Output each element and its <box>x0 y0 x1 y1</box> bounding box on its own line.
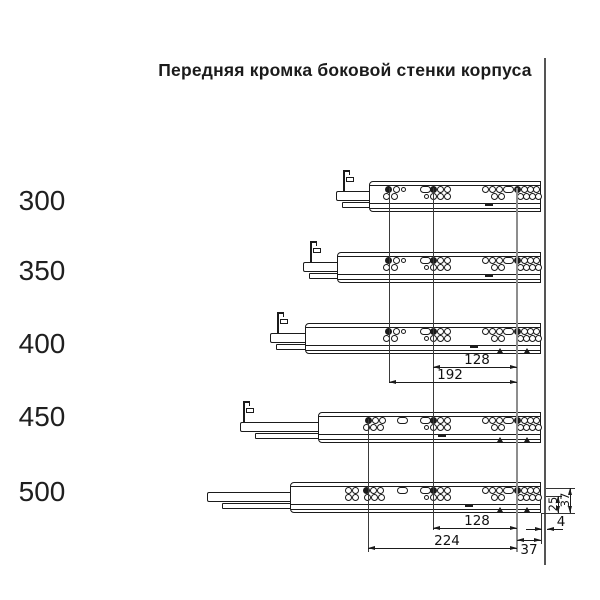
mounting-hole <box>533 186 540 193</box>
mounting-hole <box>437 494 444 501</box>
mounting-hole <box>391 335 398 342</box>
mounting-slot <box>503 487 514 494</box>
length-label-350: 350 <box>10 255 74 287</box>
mounting-hole <box>391 264 398 271</box>
diagram-canvas: Передняя кромка боковой стенки корпуса 3… <box>0 0 600 600</box>
mounting-hole <box>498 335 505 342</box>
mounting-hole <box>370 424 377 431</box>
mounting-slot <box>503 257 514 264</box>
mounting-slot <box>503 186 514 193</box>
mounting-hole <box>424 265 429 270</box>
mounting-slot <box>420 417 431 424</box>
drawer-hook-pin <box>310 241 312 262</box>
mounting-hole <box>482 257 489 264</box>
mounting-hole <box>533 417 540 424</box>
dim-arrowhead <box>510 365 517 369</box>
alignment-notch <box>524 507 530 512</box>
mounting-hole <box>345 494 352 501</box>
mounting-hole <box>444 487 451 494</box>
body-lower-line <box>319 439 540 440</box>
mounting-hole <box>535 335 542 342</box>
mounting-hole <box>496 417 503 424</box>
mounting-slot <box>420 186 431 193</box>
mounting-slot <box>503 417 514 424</box>
mounting-hole <box>491 264 498 271</box>
mounting-slot <box>420 328 431 335</box>
mounting-hole <box>489 186 496 193</box>
mounting-hole <box>393 257 400 264</box>
reference-line-x433 <box>433 188 434 530</box>
mounting-hole <box>424 336 429 341</box>
alignment-notch <box>524 348 530 353</box>
hook-pin-top-stub <box>283 312 285 317</box>
body-lower-line <box>370 208 540 209</box>
mounting-hole <box>496 186 503 193</box>
rail-350-drawer-bar <box>303 262 341 272</box>
mounting-hole <box>535 494 542 501</box>
mounting-hole <box>444 335 451 342</box>
mounting-hole <box>377 424 384 431</box>
mounting-hole <box>482 186 489 193</box>
mounting-hole <box>424 194 429 199</box>
dim-arrowhead <box>510 546 517 550</box>
reference-line-x517 <box>516 188 518 552</box>
rail-400-drawer-bar <box>270 333 309 343</box>
mounting-hole <box>437 335 444 342</box>
length-label-300: 300 <box>10 185 74 217</box>
mounting-hole <box>491 335 498 342</box>
mounting-hole <box>444 193 451 200</box>
mounting-hole <box>401 258 406 263</box>
mounting-hole <box>424 495 429 500</box>
mounting-hole <box>444 257 451 264</box>
dim-arrowhead <box>510 380 517 384</box>
mounting-hole <box>393 328 400 335</box>
body-mid-line <box>306 345 540 346</box>
hook-pin-top-stub <box>349 170 351 175</box>
mounting-hole <box>482 328 489 335</box>
alignment-notch <box>524 437 530 442</box>
mounting-slot <box>397 487 408 494</box>
dim-arrowhead <box>368 546 375 550</box>
mounting-hole <box>533 328 540 335</box>
mounting-hole <box>437 186 444 193</box>
body-lower-line <box>306 350 540 351</box>
latch-mark <box>470 346 478 349</box>
body-lower-line <box>291 509 540 510</box>
dimension-4-label: 4 <box>557 514 566 530</box>
mounting-hole <box>378 494 385 501</box>
drawer-slides-diagram: 3003504004505001281921282243742537 <box>0 0 600 600</box>
mounting-hole <box>352 494 359 501</box>
alignment-notch <box>497 507 503 512</box>
mounting-hole <box>437 264 444 271</box>
body-lower-line <box>338 279 540 280</box>
drawer-hook-pin <box>277 312 279 333</box>
mounting-hole <box>498 494 505 501</box>
dim-arrowhead <box>389 380 396 384</box>
mounting-hole <box>437 417 444 424</box>
mounting-hole <box>496 328 503 335</box>
mounting-hole <box>489 257 496 264</box>
length-label-500: 500 <box>10 476 74 508</box>
mounting-hole <box>377 487 384 494</box>
rail-500-lower-bar <box>222 503 294 509</box>
rail-450-drawer-bar <box>240 422 322 432</box>
mounting-hole <box>437 487 444 494</box>
dimension-37-label: 37 <box>520 542 537 558</box>
body-top-flange-line <box>291 486 540 487</box>
mounting-hole <box>401 187 406 192</box>
mounting-hole <box>444 328 451 335</box>
mounting-hole <box>391 193 398 200</box>
mounting-hole <box>444 264 451 271</box>
hook-flag <box>246 408 254 413</box>
mounting-hole <box>491 494 498 501</box>
mounting-hole <box>379 417 386 424</box>
mounting-hole <box>444 417 451 424</box>
mounting-hole <box>498 424 505 431</box>
mounting-hole <box>482 487 489 494</box>
mounting-hole <box>496 487 503 494</box>
mounting-hole <box>424 425 429 430</box>
body-mid-line <box>338 274 540 275</box>
body-mid-line <box>319 434 540 435</box>
dimension-224-label: 224 <box>434 533 460 549</box>
mounting-hole <box>535 424 542 431</box>
mounting-hole <box>370 487 377 494</box>
mounting-hole <box>489 417 496 424</box>
mounting-hole <box>498 264 505 271</box>
dimension-128-label: 128 <box>464 513 490 529</box>
latch-mark <box>485 204 493 207</box>
hook-pin-top-stub <box>249 401 251 406</box>
mounting-hole <box>535 193 542 200</box>
length-label-450: 450 <box>10 401 74 433</box>
hook-flag <box>313 248 321 253</box>
body-mid-line <box>291 504 540 505</box>
alignment-notch <box>497 348 503 353</box>
latch-mark <box>465 505 473 508</box>
mounting-hole <box>372 417 379 424</box>
drawer-hook-pin <box>243 401 245 422</box>
body-mid-line <box>370 203 540 204</box>
dimension-128-label: 128 <box>464 352 490 368</box>
mounting-hole <box>437 257 444 264</box>
rail-300-drawer-bar <box>336 191 373 201</box>
mounting-hole <box>444 494 451 501</box>
mounting-hole <box>533 257 540 264</box>
mounting-hole <box>482 417 489 424</box>
dim-arrowhead <box>535 527 542 531</box>
mounting-hole <box>535 264 542 271</box>
latch-mark <box>485 275 493 278</box>
latch-mark <box>438 435 446 438</box>
mounting-hole <box>489 328 496 335</box>
mounting-hole <box>444 424 451 431</box>
rail-500-drawer-bar <box>207 492 294 502</box>
mounting-hole <box>444 186 451 193</box>
mounting-hole <box>496 257 503 264</box>
mounting-hole <box>491 193 498 200</box>
mounting-hole <box>345 487 352 494</box>
mounting-hole <box>533 487 540 494</box>
length-label-400: 400 <box>10 328 74 360</box>
mounting-hole <box>437 193 444 200</box>
mounting-hole <box>437 328 444 335</box>
hook-flag <box>346 177 354 182</box>
mounting-hole <box>371 494 378 501</box>
dimension-192-label: 192 <box>437 367 463 383</box>
mounting-slot <box>420 257 431 264</box>
mounting-slot <box>503 328 514 335</box>
mounting-hole <box>437 424 444 431</box>
mounting-slot <box>397 417 408 424</box>
corpus-front-edge-line <box>544 58 547 565</box>
reference-line-x368 <box>368 419 369 552</box>
drawer-hook-pin <box>343 170 345 191</box>
alignment-notch <box>497 437 503 442</box>
mounting-hole <box>352 487 359 494</box>
hook-pin-top-stub <box>316 241 318 246</box>
dim-arrowhead <box>510 526 517 530</box>
mounting-hole <box>498 193 505 200</box>
dim-arrowhead <box>433 526 440 530</box>
mounting-slot <box>420 487 431 494</box>
mounting-hole <box>489 487 496 494</box>
hook-flag <box>280 319 288 324</box>
mounting-hole <box>491 424 498 431</box>
rail-450-lower-bar <box>255 433 322 439</box>
dimension-37-label: 37 <box>558 493 572 508</box>
mounting-hole <box>401 329 406 334</box>
mounting-hole <box>393 186 400 193</box>
reference-line-x389 <box>389 188 390 382</box>
